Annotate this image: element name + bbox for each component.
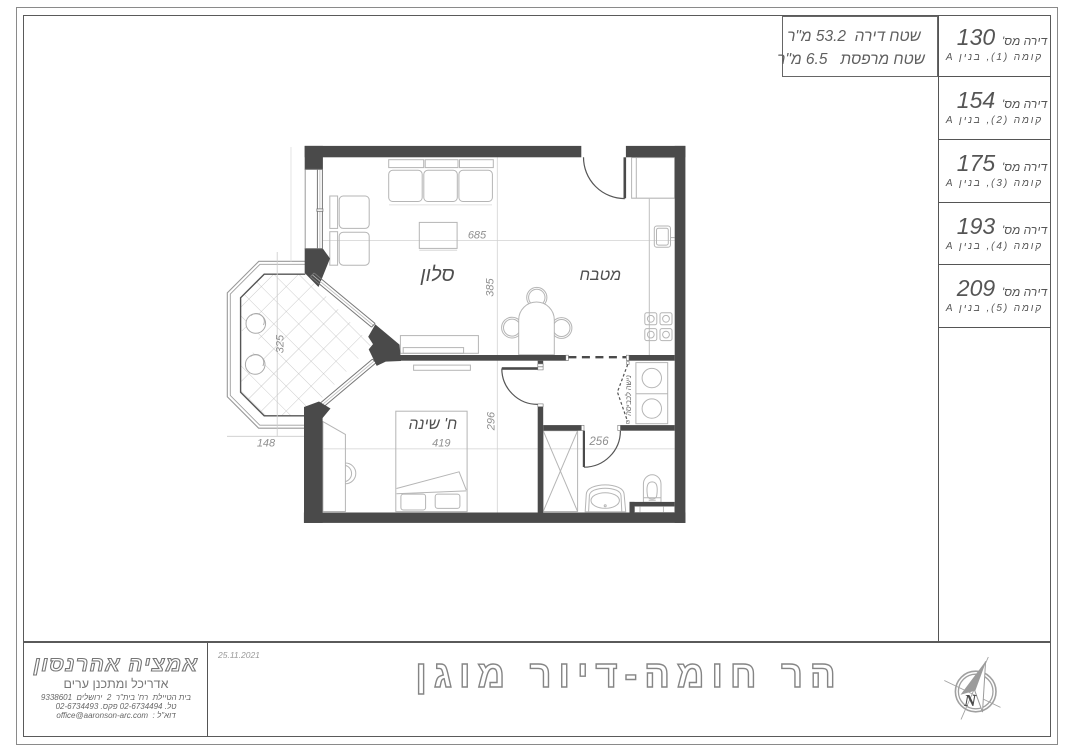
svg-text:296: 296 [486, 411, 498, 431]
svg-text:מטבח: מטבח [580, 267, 622, 284]
svg-text:256: 256 [588, 436, 609, 448]
svg-text:סלון: סלון [419, 264, 454, 286]
svg-text:325: 325 [275, 334, 287, 353]
svg-text:685: 685 [468, 230, 487, 242]
svg-text:נישה לכביסה: נישה לכביסה [624, 375, 633, 416]
svg-text:419: 419 [432, 437, 450, 449]
svg-text:385: 385 [485, 277, 497, 296]
svg-text:148: 148 [257, 438, 276, 450]
svg-text:ח' שינה: ח' שינה [409, 416, 458, 433]
